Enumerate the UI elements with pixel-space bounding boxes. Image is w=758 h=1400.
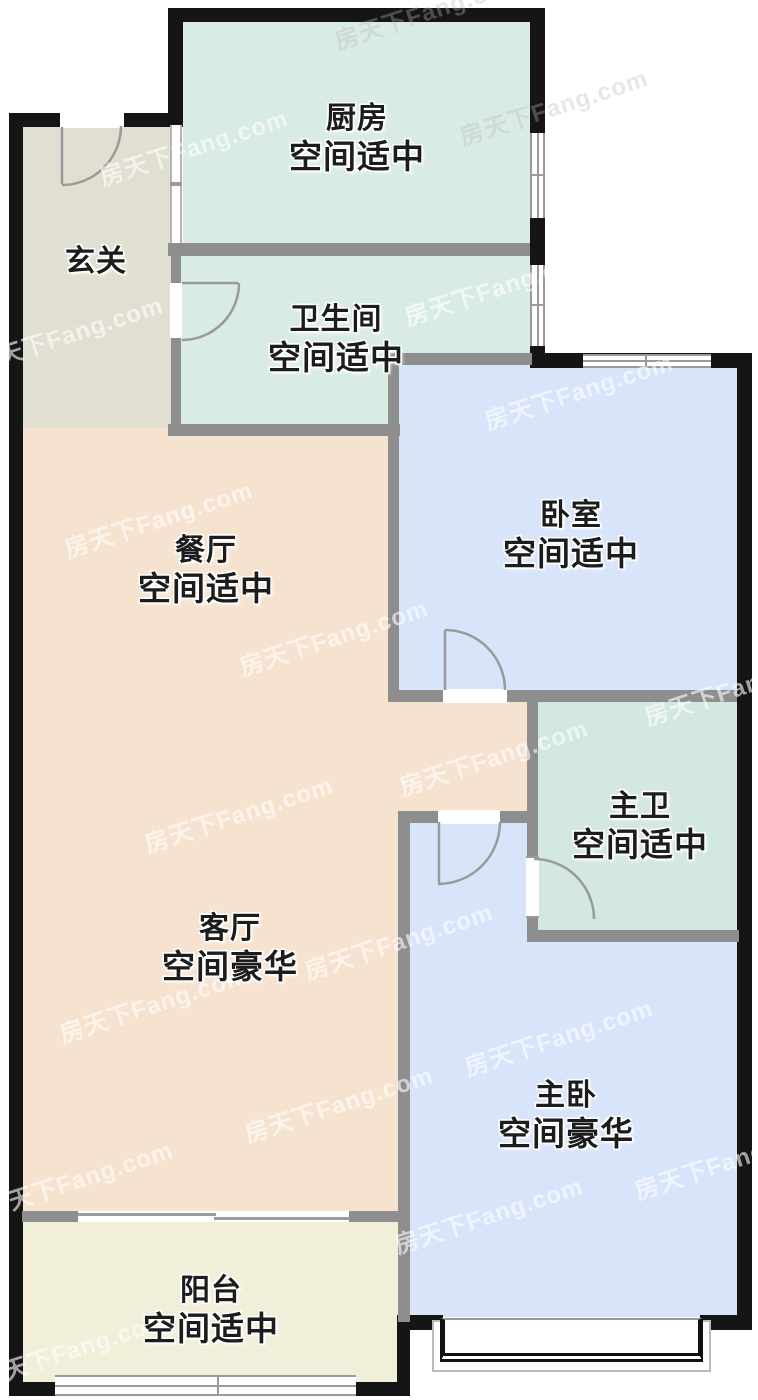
room-name: 卫生间 bbox=[268, 302, 404, 338]
room-name: 餐厅 bbox=[138, 533, 274, 569]
room-name: 玄关 bbox=[65, 244, 127, 280]
label-bedroom: 卧室 空间适中 bbox=[503, 498, 639, 574]
room-quality: 空间适中 bbox=[503, 534, 639, 574]
bath-door-arc bbox=[182, 283, 239, 340]
room-quality: 空间适中 bbox=[138, 569, 274, 609]
door-arcs bbox=[0, 0, 758, 1400]
label-kitchen: 厨房 空间适中 bbox=[289, 101, 425, 177]
room-quality: 空间适中 bbox=[289, 137, 425, 177]
bedroom-door-arc bbox=[445, 630, 505, 690]
room-name: 阳台 bbox=[143, 1273, 279, 1309]
room-name: 客厅 bbox=[162, 911, 298, 947]
mbr-door-arc bbox=[438, 822, 500, 884]
label-hall: 玄关 bbox=[65, 244, 127, 280]
room-name: 主卧 bbox=[498, 1078, 634, 1114]
entry-door-arc bbox=[62, 126, 121, 185]
label-balcony: 阳台 空间适中 bbox=[143, 1273, 279, 1349]
room-quality: 空间适中 bbox=[143, 1309, 279, 1349]
room-name: 卧室 bbox=[503, 498, 639, 534]
mbath-door-arc bbox=[534, 859, 594, 919]
floorplan: 玄关 厨房 空间适中 卫生间 空间适中 卧室 空间适中 餐厅 空间适中 主卫 空… bbox=[0, 0, 758, 1400]
label-master-bath: 主卫 空间适中 bbox=[572, 789, 708, 865]
room-quality: 空间适中 bbox=[572, 825, 708, 865]
room-quality: 空间豪华 bbox=[498, 1114, 634, 1154]
room-name: 主卫 bbox=[572, 789, 708, 825]
room-quality: 空间适中 bbox=[268, 338, 404, 378]
label-dining: 餐厅 空间适中 bbox=[138, 533, 274, 609]
room-quality: 空间豪华 bbox=[162, 947, 298, 987]
label-master-bedroom: 主卧 空间豪华 bbox=[498, 1078, 634, 1154]
label-bath: 卫生间 空间适中 bbox=[268, 302, 404, 378]
room-name: 厨房 bbox=[289, 101, 425, 137]
label-living: 客厅 空间豪华 bbox=[162, 911, 298, 987]
